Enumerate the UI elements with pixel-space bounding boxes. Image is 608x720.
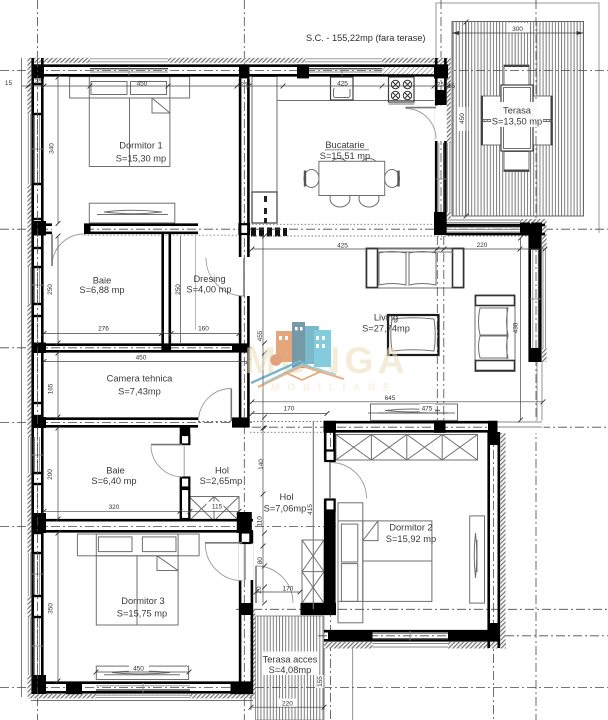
svg-text:645: 645 [385, 395, 396, 402]
svg-text:25: 25 [240, 81, 248, 88]
svg-text:Baie: Baie [93, 276, 112, 286]
svg-text:S=15,51 mp: S=15,51 mp [320, 151, 370, 161]
svg-text:Baie: Baie [106, 465, 125, 475]
svg-text:Bucatarie: Bucatarie [325, 140, 364, 150]
svg-text:450: 450 [137, 80, 148, 87]
svg-text:Hol: Hol [215, 465, 229, 475]
svg-text:Terasa: Terasa [503, 106, 532, 116]
svg-text:Camera tehnica: Camera tehnica [107, 373, 173, 383]
svg-text:425: 425 [337, 80, 348, 87]
svg-text:450: 450 [459, 113, 466, 124]
svg-text:S=4,00 mp: S=4,00 mp [186, 285, 231, 295]
svg-text:S.C. - 155,22mp (fara terase): S.C. - 155,22mp (fara terase) [306, 33, 426, 43]
svg-text:430: 430 [513, 322, 520, 333]
svg-text:S=6,88 mp: S=6,88 mp [79, 285, 124, 295]
svg-text:15: 15 [448, 83, 456, 90]
svg-text:S=27,74mp: S=27,74mp [362, 323, 410, 333]
svg-text:160: 160 [198, 325, 209, 332]
svg-text:80: 80 [257, 557, 264, 565]
svg-text:S=6,40 mp: S=6,40 mp [91, 476, 136, 486]
svg-text:Living: Living [374, 313, 398, 323]
svg-text:300: 300 [512, 26, 523, 33]
svg-text:Dormitor 2: Dormitor 2 [389, 523, 432, 533]
svg-text:S=7,06mp: S=7,06mp [264, 503, 307, 513]
svg-text:220: 220 [477, 242, 488, 249]
svg-text:25: 25 [35, 79, 43, 86]
svg-text:450: 450 [133, 666, 144, 673]
svg-text:Dresing: Dresing [193, 274, 225, 284]
svg-text:Terasa acces: Terasa acces [263, 654, 318, 664]
svg-text:140: 140 [258, 459, 265, 470]
svg-text:IMOBILIARE: IMOBILIARE [261, 382, 398, 394]
svg-text:220: 220 [282, 700, 293, 707]
svg-text:S=15,75 mp: S=15,75 mp [117, 609, 167, 619]
svg-text:415: 415 [307, 504, 314, 515]
svg-text:170: 170 [284, 406, 295, 413]
svg-text:170: 170 [283, 586, 294, 593]
svg-text:25: 25 [437, 81, 445, 88]
svg-text:S=7,43mp: S=7,43mp [118, 387, 161, 397]
svg-text:475: 475 [422, 406, 433, 413]
svg-text:S=2,65mp: S=2,65mp [200, 476, 243, 486]
svg-text:20: 20 [256, 586, 263, 594]
svg-text:320: 320 [109, 504, 120, 511]
svg-text:110: 110 [257, 516, 264, 527]
svg-text:350: 350 [48, 603, 55, 614]
svg-text:S=15,30 mp: S=15,30 mp [116, 153, 166, 163]
svg-text:340: 340 [49, 143, 56, 154]
svg-text:S=4,08mp: S=4,08mp [269, 665, 312, 675]
svg-text:450: 450 [136, 354, 147, 361]
svg-text:165: 165 [48, 383, 55, 394]
svg-text:250: 250 [47, 284, 54, 295]
svg-text:155: 155 [317, 676, 324, 687]
svg-text:S=15,92 mp: S=15,92 mp [386, 534, 436, 544]
svg-text:200: 200 [47, 469, 54, 480]
svg-text:Dormitor 3: Dormitor 3 [121, 596, 164, 606]
svg-text:15: 15 [5, 80, 13, 87]
svg-text:Hol: Hol [280, 492, 294, 502]
svg-text:115: 115 [212, 503, 223, 510]
svg-text:250: 250 [175, 284, 182, 295]
svg-text:276: 276 [98, 325, 109, 332]
svg-text:Dormitor 1: Dormitor 1 [119, 141, 162, 151]
svg-text:425: 425 [337, 242, 348, 249]
svg-text:S=13,50 mp: S=13,50 mp [492, 117, 542, 127]
